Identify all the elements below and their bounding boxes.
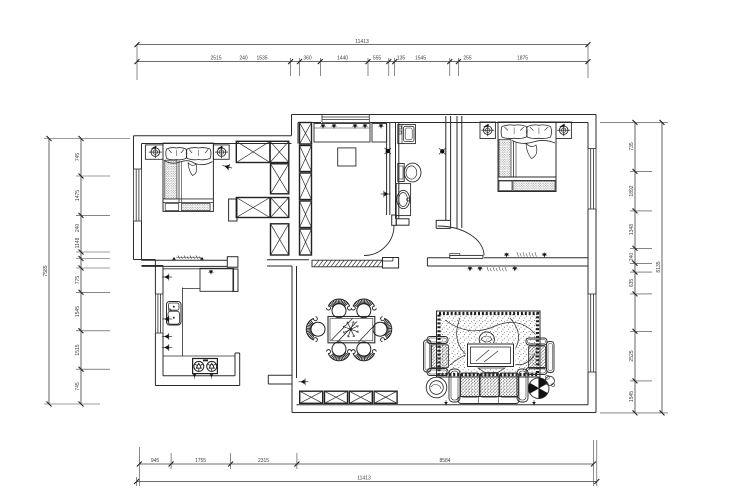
svg-text:11413: 11413 — [355, 39, 369, 45]
svg-text:1515: 1515 — [75, 344, 81, 355]
svg-text:1545: 1545 — [75, 306, 81, 317]
svg-text:255: 255 — [463, 56, 472, 62]
svg-text:775: 775 — [75, 276, 81, 285]
svg-text:7585: 7585 — [43, 265, 49, 276]
svg-text:8584: 8584 — [439, 458, 450, 464]
svg-text:240: 240 — [75, 224, 81, 233]
svg-text:1755: 1755 — [195, 458, 206, 464]
svg-text:735: 735 — [629, 142, 635, 151]
svg-text:1545: 1545 — [415, 56, 426, 62]
svg-text:1440: 1440 — [337, 56, 348, 62]
svg-text:1545: 1545 — [629, 391, 635, 402]
svg-text:2515: 2515 — [210, 56, 221, 62]
svg-text:1535: 1535 — [256, 56, 267, 62]
svg-text:240: 240 — [239, 56, 248, 62]
svg-text:1875: 1875 — [517, 56, 528, 62]
svg-text:945: 945 — [151, 458, 160, 464]
svg-text:1892: 1892 — [629, 185, 635, 196]
svg-text:635: 635 — [629, 279, 635, 288]
svg-text:1148: 1148 — [75, 237, 81, 248]
svg-text:360: 360 — [303, 56, 312, 62]
svg-text:745: 745 — [75, 382, 81, 391]
svg-text:1348: 1348 — [629, 224, 635, 235]
svg-text:135: 135 — [397, 56, 406, 62]
svg-text:2525: 2525 — [629, 350, 635, 361]
svg-text:240: 240 — [629, 253, 635, 262]
svg-text:1475: 1475 — [75, 190, 81, 201]
svg-text:2315: 2315 — [258, 458, 269, 464]
svg-text:555: 555 — [373, 56, 382, 62]
svg-text:8135: 8135 — [656, 261, 662, 272]
svg-text:745: 745 — [75, 153, 81, 162]
svg-text:11413: 11413 — [357, 476, 371, 482]
